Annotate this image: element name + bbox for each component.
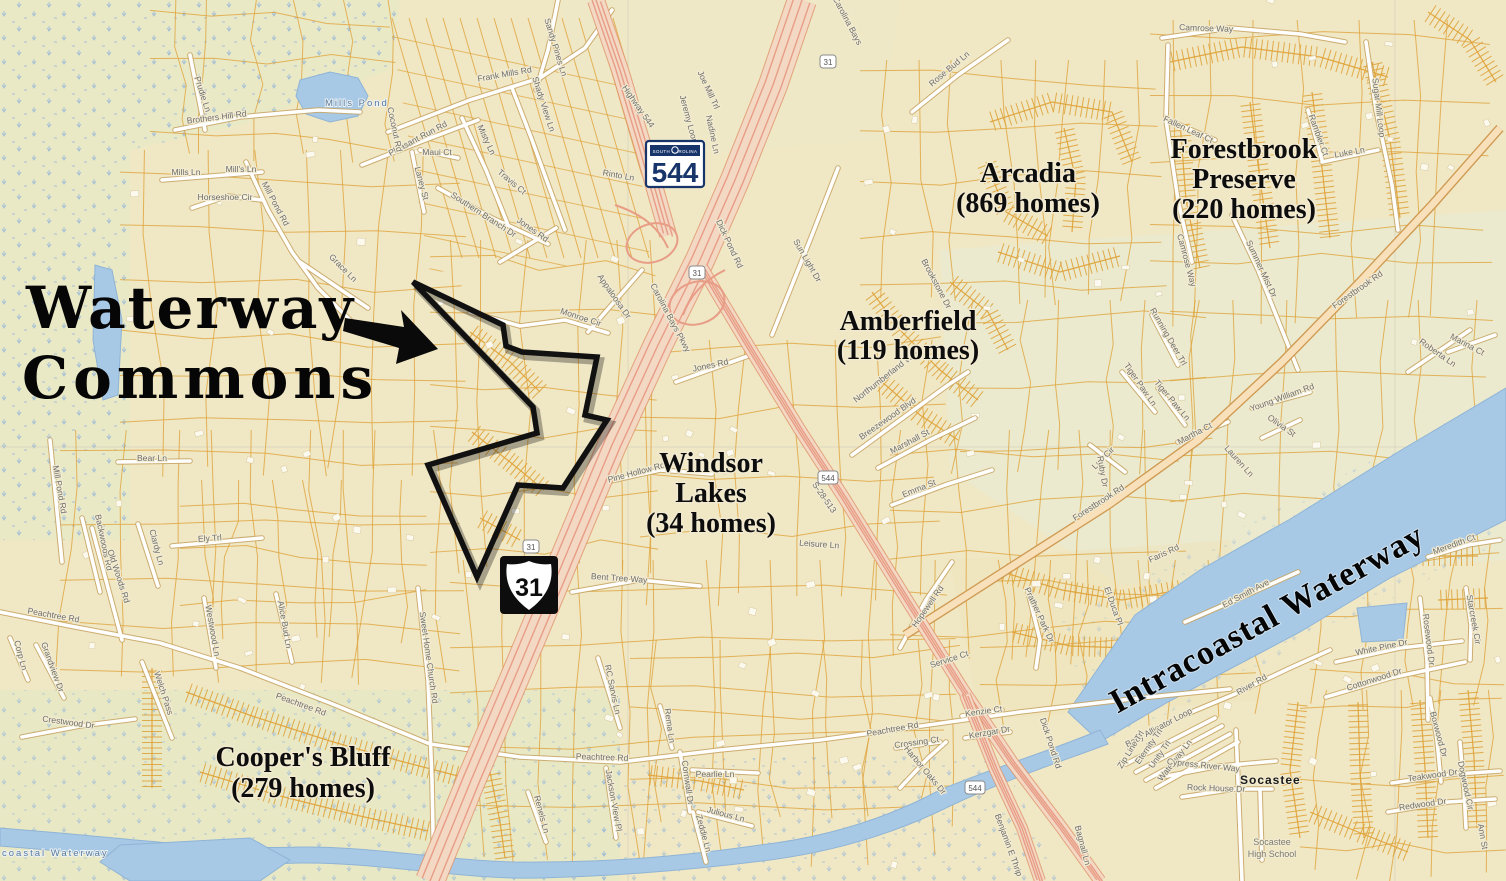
parcel-map: Prudie LnBrothers Hill RdMills LnMill's … <box>0 0 1506 881</box>
water-label: coastal Waterway <box>2 848 109 859</box>
road-label: Maui Ct <box>422 147 452 157</box>
road-label: Rock House Dr <box>1187 782 1246 794</box>
place-label: High School <box>1248 849 1297 859</box>
road-label: Pearlie Ln <box>696 769 735 779</box>
small-route-shield: 31 <box>523 540 539 553</box>
coopers-bluff-label: Cooper's Bluff(279 homes) <box>216 742 392 804</box>
svg-text:31: 31 <box>824 58 833 67</box>
annotation-title-line2: Commons <box>22 344 378 412</box>
road-label: Ely Trl <box>198 532 223 544</box>
amberfield-label: Amberfield(119 homes) <box>837 306 979 366</box>
small-route-shield: 544 <box>965 781 985 794</box>
water-label: Mills Pond <box>325 98 389 109</box>
map-canvas: Prudie LnBrothers Hill RdMills LnMill's … <box>0 0 1506 881</box>
road-label: Mill's Ln <box>226 164 257 174</box>
road-label: Bear Ln <box>137 453 167 463</box>
bottomleft-pond <box>100 838 290 881</box>
annotation-title-line1: Waterway <box>25 274 355 342</box>
forestbrook-preserve-label: ForestbrookPreserve(220 homes) <box>1171 134 1318 225</box>
svg-text:544: 544 <box>652 157 699 188</box>
us-31-shield: 31 <box>500 556 558 614</box>
small-route-shield: 544 <box>818 471 838 484</box>
svg-text:544: 544 <box>968 784 982 793</box>
place-label: Socastee <box>1240 773 1301 787</box>
road-label: Peachtree Rd <box>576 751 629 763</box>
sc-544-shield: SOUTH CAROLINA544 <box>646 141 704 188</box>
socastee-pond <box>1357 603 1407 642</box>
place-label: Socastee <box>1253 837 1291 847</box>
road-label: Mills Ln <box>171 167 200 177</box>
svg-text:544: 544 <box>821 474 835 483</box>
small-route-shield: 31 <box>689 266 705 279</box>
road-label: Horseshoe Cir <box>198 192 253 202</box>
small-route-shield: 31 <box>820 55 836 68</box>
svg-text:31: 31 <box>527 543 536 552</box>
svg-text:31: 31 <box>693 269 702 278</box>
svg-text:31: 31 <box>515 574 543 602</box>
road-label: Camrose Way <box>1179 22 1234 34</box>
